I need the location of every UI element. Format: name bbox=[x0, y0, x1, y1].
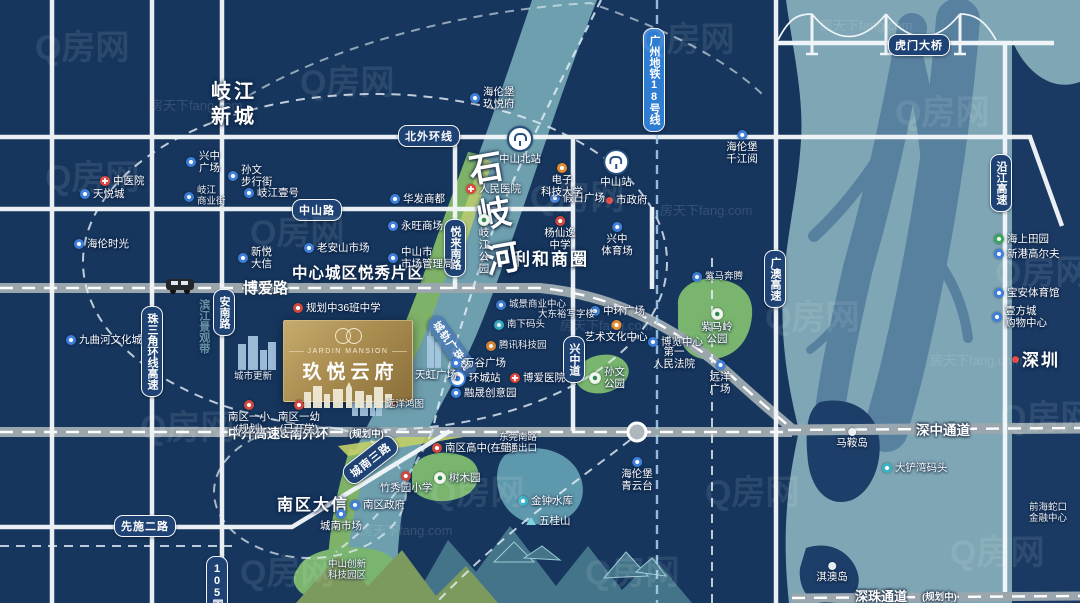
hospital-icon bbox=[100, 176, 110, 186]
dongguan-south-exit: 东莞南路互通出口 bbox=[499, 433, 537, 455]
xingzhong-stadium: 兴中体育场 bbox=[601, 222, 633, 257]
huafa-shangdu: 华发商都 bbox=[390, 193, 445, 205]
island-icon bbox=[828, 562, 836, 570]
qianhai-shekou-center: 前海蛇口金融中心 bbox=[1029, 503, 1067, 525]
zhonghuan-plaza: 中环广场 bbox=[590, 305, 645, 317]
school-icon bbox=[401, 471, 411, 481]
aeon-mall: 永旺商场 bbox=[388, 220, 443, 232]
school-icon bbox=[294, 400, 304, 410]
binjiang-scenic-belt: 滨江景观带 bbox=[196, 299, 210, 354]
shop-icon bbox=[336, 509, 346, 519]
yanjiang-expressway: 沿江高速 bbox=[990, 154, 1012, 212]
laoanshan-market: 老安山市场 bbox=[304, 242, 370, 254]
shenzhong-corridor-name: 深中通道 bbox=[916, 419, 970, 439]
park-white-icon bbox=[478, 214, 490, 226]
maan-island: 马鞍岛 bbox=[836, 428, 868, 449]
shop-icon bbox=[66, 335, 76, 345]
shop-icon bbox=[74, 239, 84, 249]
jardin-logo-icon bbox=[335, 328, 362, 344]
teal-icon bbox=[518, 496, 528, 506]
shop-icon bbox=[228, 171, 238, 181]
shop-icon bbox=[304, 243, 314, 253]
wugui-mountain: 五桂山 bbox=[526, 515, 571, 527]
park-white-icon bbox=[711, 308, 723, 320]
zhongshan-market-admin: 中山市市场管理局 bbox=[388, 246, 454, 270]
pearl-delta-ring-expressway: 珠三角环线高速 bbox=[141, 306, 163, 397]
shop-icon bbox=[737, 130, 747, 140]
teal-icon bbox=[882, 463, 892, 473]
property-name-en: JARDIN MANSION bbox=[308, 348, 389, 355]
shenzhen: 深圳 bbox=[1022, 350, 1060, 371]
zhongshan-innovation-tech-park: 中山创新科技园区 bbox=[328, 560, 366, 582]
shop-icon bbox=[80, 189, 90, 199]
shop-icon bbox=[184, 192, 194, 202]
sunwen-park: 孙文公园 bbox=[589, 366, 625, 390]
g105-national-road: 105国道 bbox=[206, 556, 228, 603]
property-card: JARDIN MANSION 玖悦云府 bbox=[283, 320, 413, 402]
peoples-hospital: 人民医院 bbox=[466, 183, 521, 195]
park-white-icon bbox=[589, 372, 601, 384]
shop-icon bbox=[715, 360, 725, 370]
school-icon bbox=[244, 400, 254, 410]
shop-icon bbox=[451, 388, 461, 398]
shop-icon bbox=[388, 221, 398, 231]
shumuyuan-arboretum: 树木园 bbox=[434, 472, 481, 484]
shop-icon bbox=[390, 194, 400, 204]
xianshi-2nd-road: 先施二路 bbox=[114, 515, 176, 537]
helenberg-qingyuntai: 海伦堡青云台 bbox=[621, 457, 653, 492]
shop-icon bbox=[186, 157, 196, 167]
station-icon bbox=[507, 126, 533, 152]
guangao-expressway: 广澳高速 bbox=[764, 250, 786, 308]
shenzhen-dot bbox=[1012, 356, 1019, 363]
yangxianyi-middle-school: 杨仙逸中学 bbox=[544, 216, 576, 251]
qijiang-commercial-street: 岐江商业街 bbox=[184, 186, 226, 208]
shenzhu-planning-note: (规划中) bbox=[922, 589, 957, 603]
shop-icon bbox=[470, 93, 480, 103]
dachanwan-terminal: 大铲湾码头 bbox=[882, 462, 948, 474]
urban-renewal: 城市更新 bbox=[234, 372, 272, 383]
tencent-tech-park: 腾讯科技园 bbox=[486, 341, 547, 352]
school-icon bbox=[555, 216, 565, 226]
shop-icon bbox=[632, 457, 642, 467]
wangu-plaza: 万谷广场 bbox=[451, 357, 506, 369]
planned-36-class-school: 规划中36班中学 bbox=[293, 302, 381, 314]
dadongyu-office: 大东裕写字楼 bbox=[538, 310, 595, 321]
orange-icon bbox=[557, 163, 567, 173]
park-icon bbox=[994, 234, 1004, 244]
interchange-circle bbox=[628, 423, 646, 441]
qijiang-no1: 岐江壹号 bbox=[244, 187, 299, 199]
orange-icon bbox=[611, 320, 621, 330]
orange-icon bbox=[486, 341, 496, 351]
qijiang-new-town: 岐江新城 bbox=[211, 80, 257, 130]
park-white-icon bbox=[434, 472, 446, 484]
humen-bridge: 虎门大桥 bbox=[888, 34, 950, 56]
rongsheng-creative-park: 融晟创意园 bbox=[451, 387, 517, 399]
chengnan-market: 城南市场 bbox=[320, 509, 362, 532]
mountain-icon bbox=[526, 517, 536, 525]
xingzhong-avenue: 兴中道 bbox=[563, 336, 585, 383]
boai-hospital: 博爱医院 bbox=[510, 372, 565, 384]
zimaling-park: 紫马岭公园 bbox=[701, 308, 733, 345]
shop-icon bbox=[451, 358, 461, 368]
shop-icon bbox=[692, 272, 702, 282]
boai-road-name: 博爱路 bbox=[243, 277, 288, 298]
tianyue-city: 天悦城 bbox=[80, 188, 125, 200]
ziman-benteng: 紫马奔腾 bbox=[692, 272, 743, 283]
shop-icon bbox=[612, 222, 622, 232]
zhongshan-road: 中山路 bbox=[292, 199, 342, 221]
shop-icon bbox=[994, 288, 1004, 298]
art-culture-center: 艺术文化中心 bbox=[585, 320, 648, 343]
shop-icon bbox=[994, 249, 1004, 259]
yuanyang-plaza: 远洋广场 bbox=[710, 360, 731, 395]
jiuquhe-culture-city: 九曲河文化城 bbox=[66, 334, 142, 346]
traditional-chinese-medicine-hospital: 中医院 bbox=[100, 175, 145, 187]
xingang-golf: 新港高尔夫 bbox=[994, 248, 1060, 260]
shop-icon bbox=[388, 253, 398, 263]
annan-road: 安南路 bbox=[213, 289, 235, 336]
dot-red-icon bbox=[606, 197, 613, 204]
xinyue-daxin: 新悦大信 bbox=[238, 246, 272, 270]
shop-icon bbox=[238, 253, 248, 263]
location-map: JARDIN MANSION 玖悦云府 北外环线中山路珠三角环线高速安南路悦来南… bbox=[0, 0, 1080, 603]
north-outer-ring-road: 北外环线 bbox=[398, 125, 460, 147]
baoan-stadium: 宝安体育馆 bbox=[994, 287, 1060, 299]
helenberg-jiuyuefu: 海伦堡玖悦府 bbox=[470, 86, 515, 110]
island-icon bbox=[848, 428, 856, 436]
zhongshan-north-station: 中山北站 bbox=[499, 126, 541, 165]
helen-time: 海伦时光 bbox=[74, 238, 129, 250]
property-name-cn: 玖悦云府 bbox=[297, 357, 398, 384]
qijiang-park: 岐江公园 bbox=[478, 214, 490, 275]
first-peoples-court: 第一人民法院 bbox=[653, 346, 695, 370]
station-icon bbox=[603, 149, 629, 175]
uestc-zhongshan: 电子科技大学 bbox=[541, 163, 583, 198]
school-icon bbox=[432, 443, 442, 453]
nanxia-wharf: 南下码头 bbox=[494, 320, 545, 331]
shop-icon bbox=[496, 300, 506, 310]
zhongshan-station: 中山站 bbox=[600, 149, 632, 188]
qiao-island: 淇澳岛 bbox=[816, 562, 848, 583]
shenzhu-corridor-name: 深珠通道 bbox=[855, 586, 907, 603]
xingzhong-plaza: 兴中广场 bbox=[186, 150, 220, 174]
jinzhong-reservoir: 金钟水库 bbox=[518, 495, 573, 507]
yifangcheng-mall: 壹方城购物中心 bbox=[992, 305, 1047, 329]
shop-icon bbox=[244, 188, 254, 198]
dot-red-icon bbox=[1012, 356, 1019, 363]
yuanyang-hongtu: 远洋鸿图 bbox=[386, 400, 424, 411]
hospital-icon bbox=[510, 373, 520, 383]
lihe-business-circle: 利和商圈 bbox=[513, 249, 589, 270]
school-icon bbox=[293, 303, 303, 313]
helenberg-qianjiangyue: 海伦堡千江阅 bbox=[726, 130, 758, 165]
zhuxiuyuan-primary: 竹秀园小学 bbox=[380, 471, 433, 494]
guangzhou-metro-line-18: 广州地铁18号线 bbox=[643, 28, 665, 132]
city-government: 市政府 bbox=[606, 194, 648, 206]
seaside-paradise: 海上田园 bbox=[994, 233, 1049, 245]
hospital-icon bbox=[466, 184, 476, 194]
shop-icon bbox=[992, 312, 1002, 322]
tianhong-plaza: 天虹广场 bbox=[415, 369, 457, 381]
zhongkai-planning-note: (规划中) bbox=[349, 426, 384, 440]
teal-icon bbox=[494, 320, 504, 330]
nanqu-first-kindergarten: 南区一幼(已开学) bbox=[278, 400, 320, 435]
nanqu-first-primary: 南区一小(规划) bbox=[228, 400, 270, 435]
sunwen-pedestrian-street: 孙文步行街 bbox=[228, 164, 273, 188]
